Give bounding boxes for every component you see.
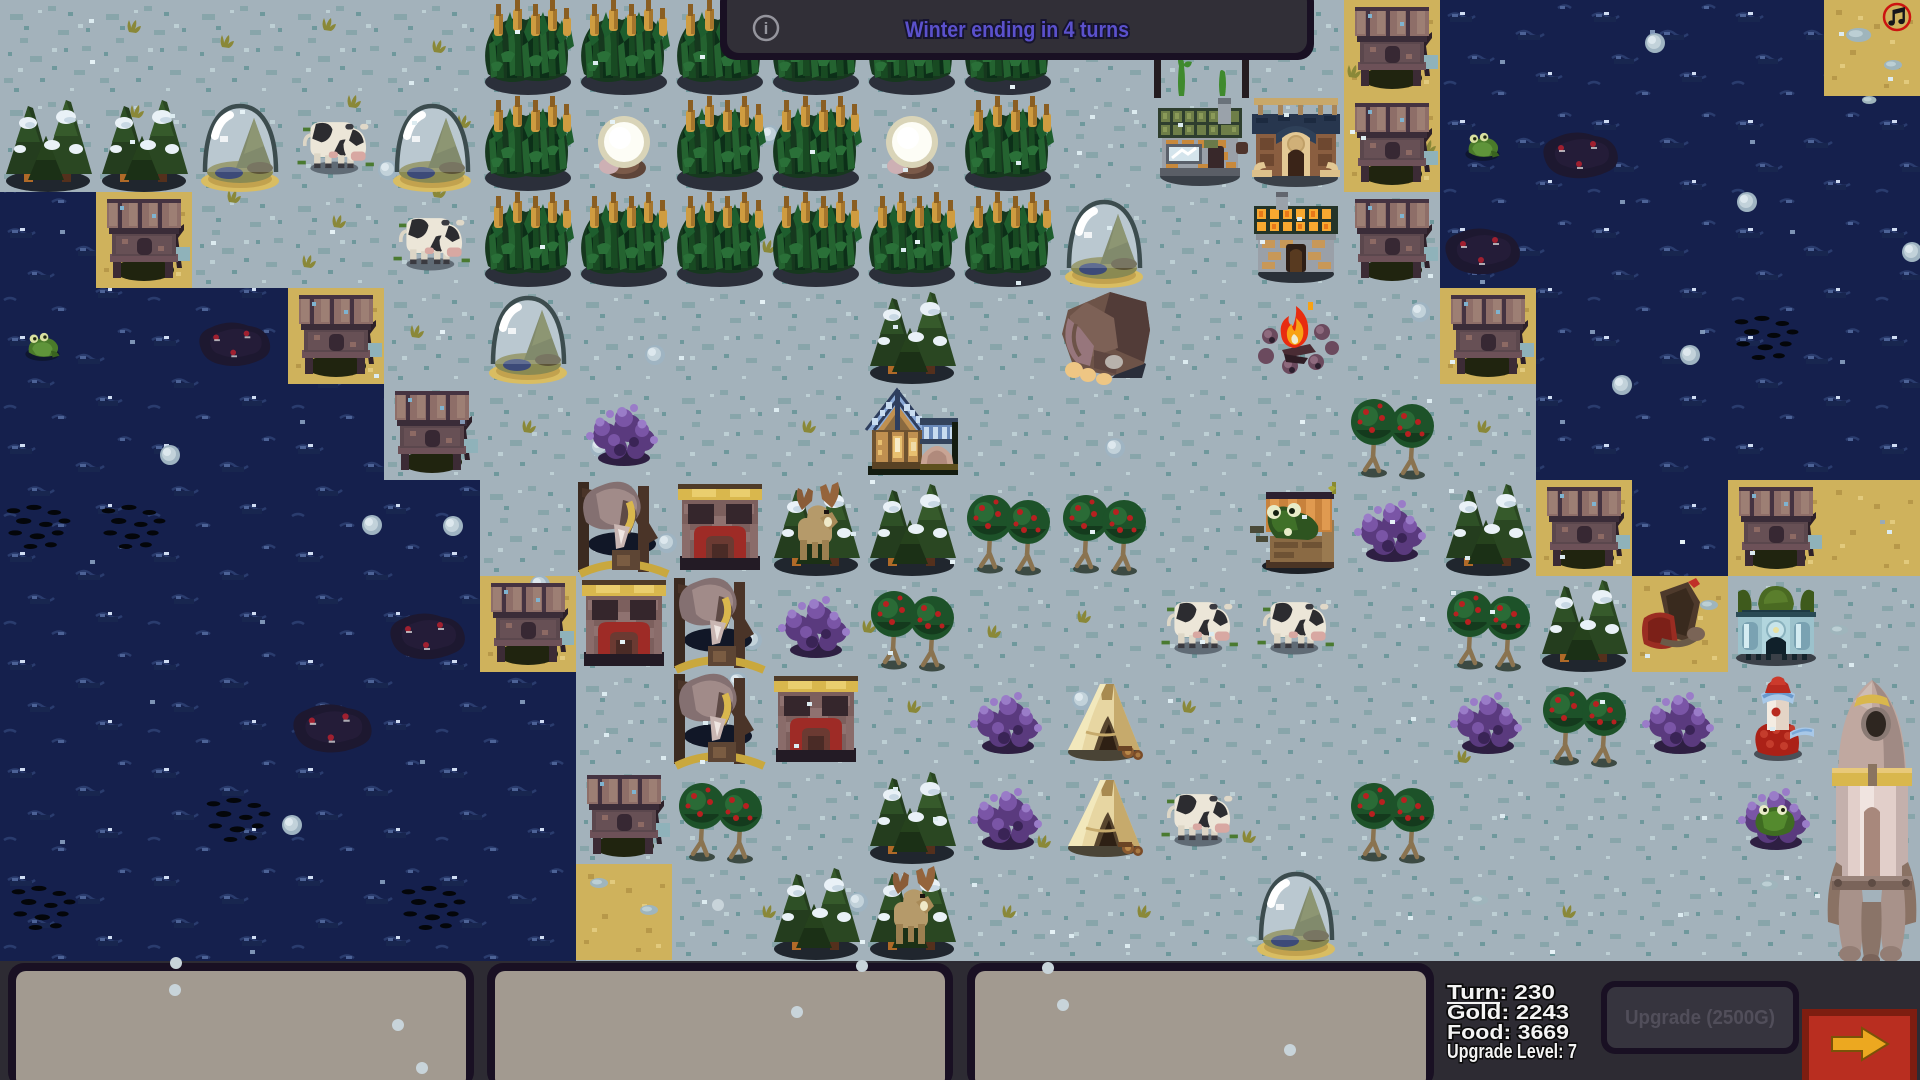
svg-text:Winter ending in 4 turns: Winter ending in 4 turns — [905, 17, 1129, 42]
svg-text:Gold: 2243: Gold: 2243 — [1447, 1002, 1569, 1024]
svg-text:Upgrade Level: 7: Upgrade Level: 7 — [1447, 1041, 1577, 1063]
svg-text:Upgrade (2500G): Upgrade (2500G) — [1625, 1007, 1775, 1029]
svg-text:Turn: 230: Turn: 230 — [1447, 982, 1555, 1004]
svg-text:i: i — [764, 19, 769, 38]
